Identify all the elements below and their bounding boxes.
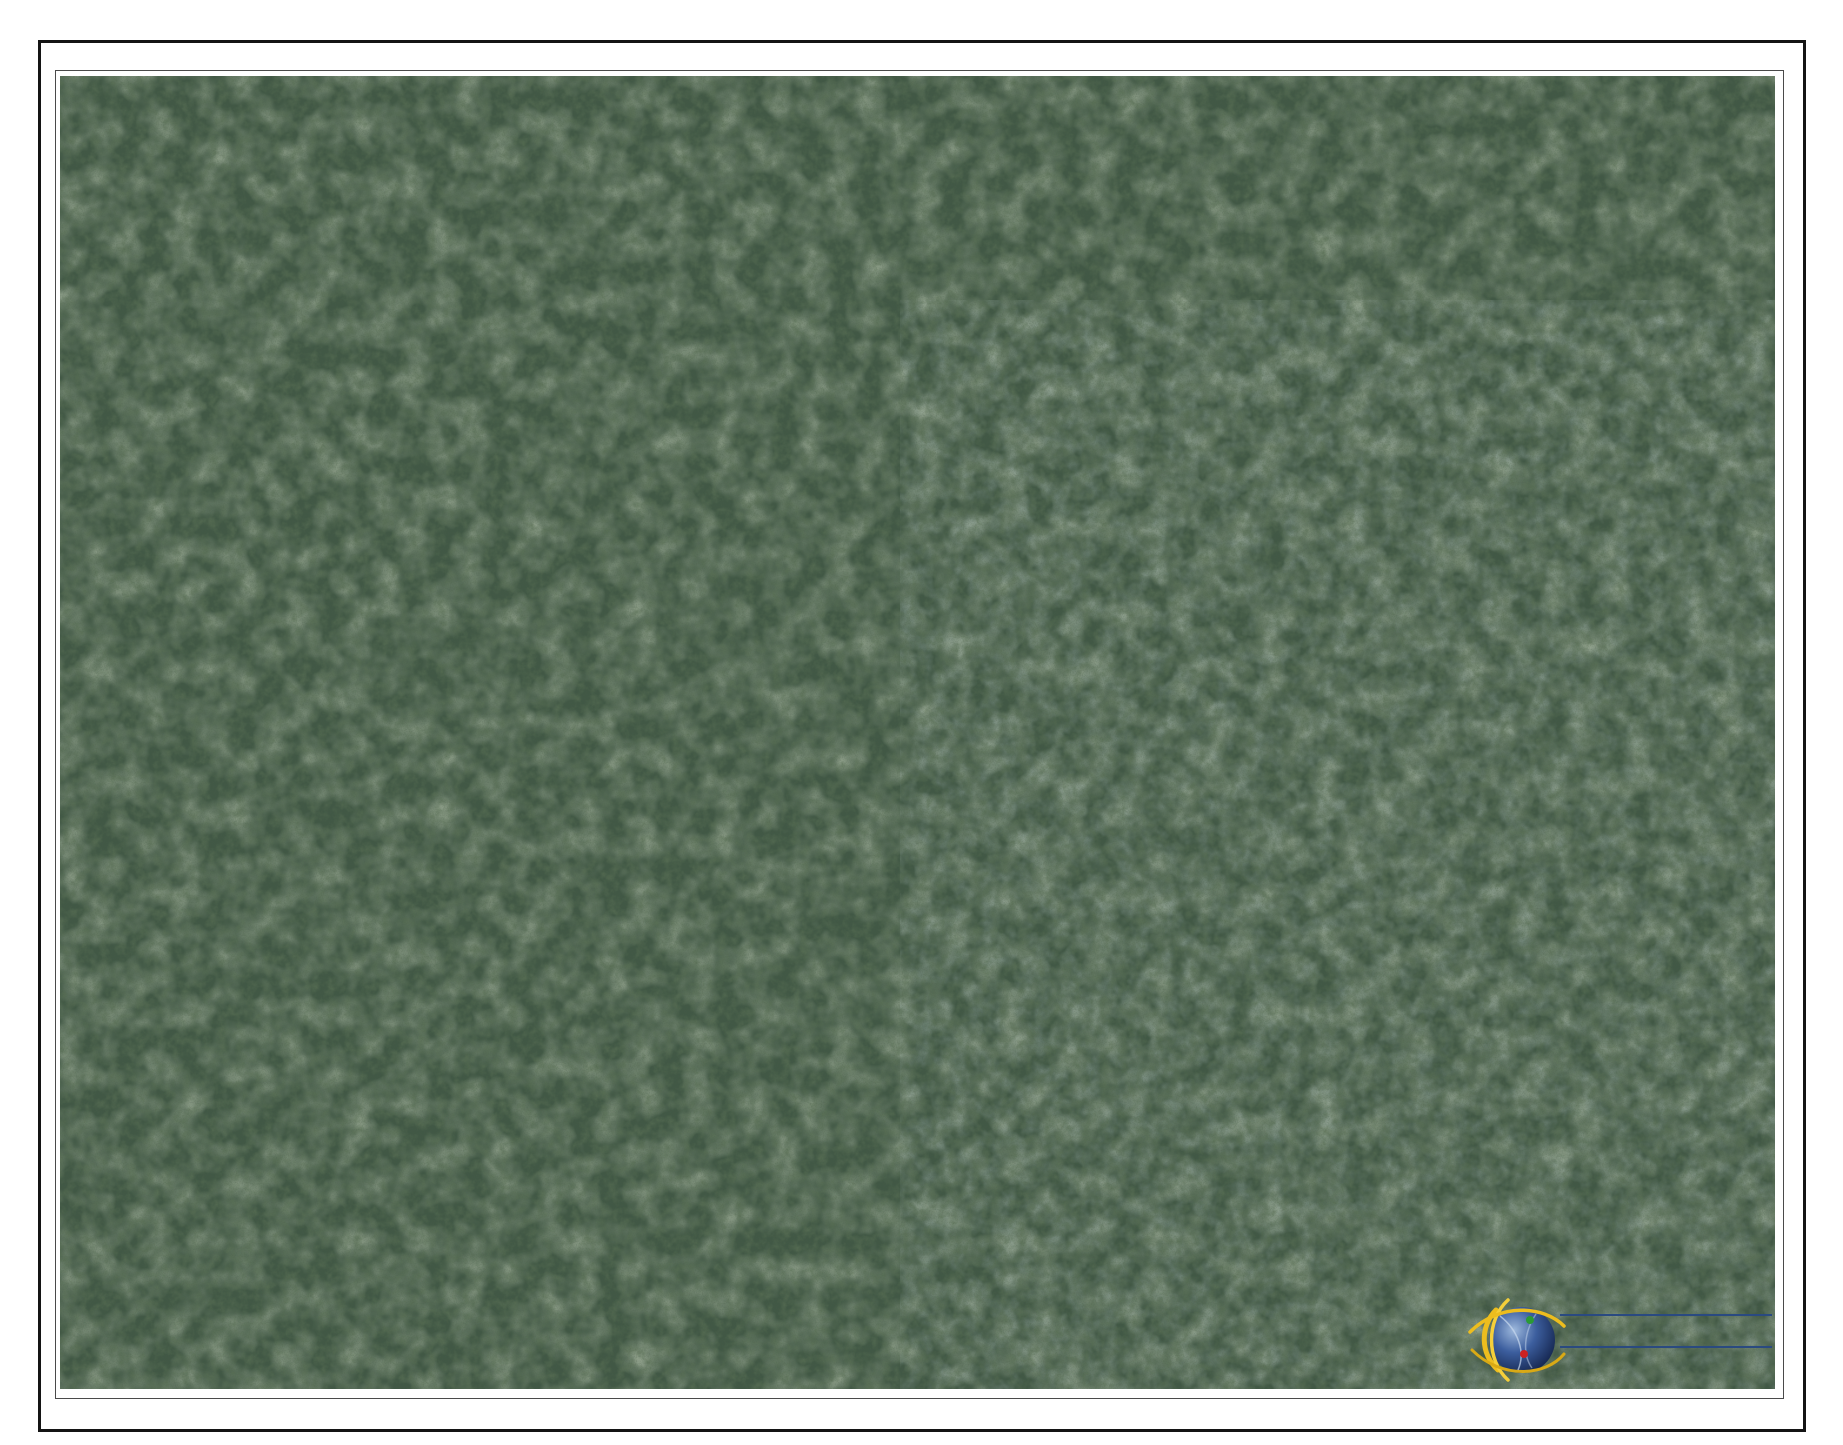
map-export-page — [0, 0, 1843, 1445]
map-outer-frame — [38, 40, 1806, 1432]
